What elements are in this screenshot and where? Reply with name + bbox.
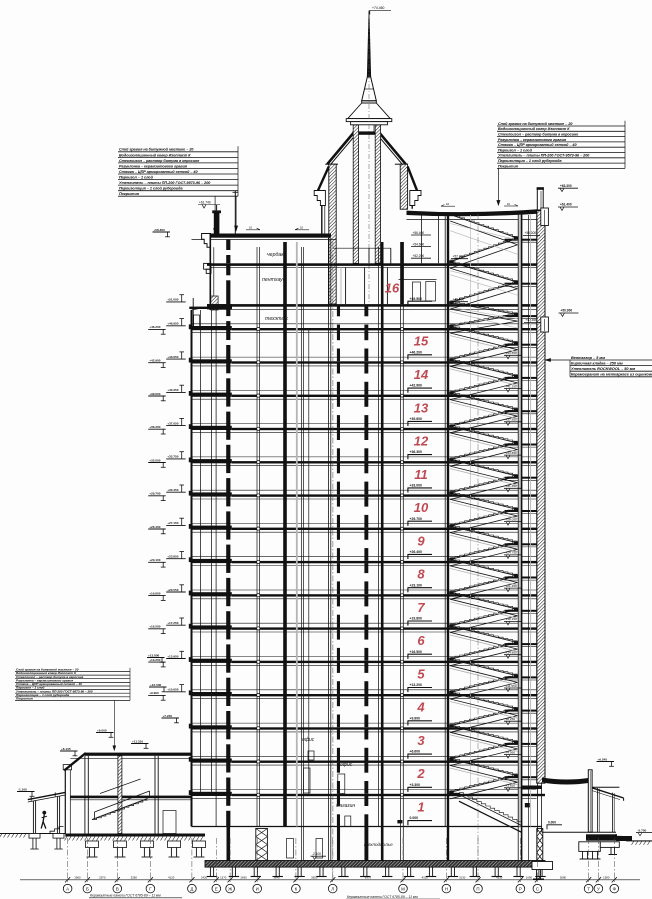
svg-text:+9.000: +9.000 [97,728,107,732]
svg-text:Водоизоляционный ковер Изоплас: Водоизоляционный ковер Изопласт К [119,153,191,157]
svg-text:Н: Н [445,886,448,891]
svg-text:+9.900: +9.900 [149,691,159,695]
svg-text:Утеплитель – плиты ПП-200 ГОСТ: Утеплитель – плиты ПП-200 ГОСТ-9573-96 –… [498,154,590,158]
svg-text:0.000: 0.000 [548,821,556,825]
svg-text:+43.650: +43.650 [167,355,179,359]
svg-text:+29.700: +29.700 [410,517,422,521]
svg-text:+4.950: +4.950 [506,750,516,754]
svg-text:12: 12 [414,434,429,449]
svg-text:15: 15 [414,334,429,349]
svg-text:+49.500: +49.500 [410,297,422,301]
svg-text:+10.500: +10.500 [150,683,162,687]
svg-text:+18.150: +18.150 [506,617,518,621]
svg-text:Р: Р [519,886,522,891]
svg-text:+13.200: +13.200 [410,683,422,687]
svg-text:+26.400: +26.400 [149,525,161,529]
svg-text:+19.800: +19.800 [410,617,422,621]
svg-text:9: 9 [417,533,425,548]
svg-text:+34.650: +34.650 [506,451,518,455]
svg-text:П: П [476,886,479,891]
svg-text:+19.800: +19.800 [149,591,161,595]
svg-text:+33.000: +33.000 [149,458,161,462]
svg-text:Д: Д [190,886,193,891]
svg-text:10: 10 [249,226,253,230]
svg-text:офис: офис [340,762,353,768]
svg-text:+33.750: +33.750 [167,455,179,459]
svg-text:+10.650: +10.650 [167,688,179,692]
svg-text:+8.250: +8.250 [506,717,516,721]
svg-text:+11.550: +11.550 [506,684,517,688]
svg-text:офис: офис [302,737,315,743]
svg-text:+52.200: +52.200 [453,255,465,259]
svg-text:+7.200: +7.200 [163,714,173,718]
svg-text:3650: 3650 [311,876,318,880]
svg-text:+1.650: +1.650 [506,784,516,788]
svg-text:+56.400: +56.400 [413,231,425,235]
svg-text:+39.600: +39.600 [149,392,161,396]
svg-text:+6.600: +6.600 [410,750,421,754]
svg-text:0.000: 0.000 [410,816,419,820]
svg-text:+49.500: +49.500 [453,298,465,302]
svg-text:магазин: магазин [336,803,355,809]
svg-text:+16.500: +16.500 [410,650,422,654]
svg-text:10: 10 [414,500,429,515]
svg-text:3280: 3280 [131,876,138,880]
svg-text:16: 16 [385,281,400,296]
svg-text:+46.200: +46.200 [149,325,161,329]
svg-text:4310: 4310 [422,876,429,880]
svg-text:Слой гравия на битумной мастик: Слой гравия на битумной мастике – 20 [498,122,573,126]
svg-text:Вентзазор – 5 мм: Вентзазор – 5 мм [571,356,605,360]
svg-text:+52.200: +52.200 [413,254,425,258]
svg-text:+30.450: +30.450 [167,488,179,492]
svg-text:+31.350: +31.350 [506,484,518,488]
svg-text:2: 2 [416,766,425,781]
svg-text:+13.800: +13.800 [148,653,160,657]
svg-text:техподполье: техподполье [364,842,393,847]
svg-text:-0.750: -0.750 [638,828,647,832]
svg-text:Пароизол – 1 слой: Пароизол – 1 слой [498,148,533,152]
svg-text:+42.900: +42.900 [149,359,161,363]
svg-text:+33.000: +33.000 [410,484,422,488]
svg-text:+39.600: +39.600 [410,417,422,421]
svg-text:Утеплитель ROCKWOOL – 50 мм: Утеплитель ROCKWOOL – 50 мм [571,367,635,371]
svg-text:+26.400: +26.400 [410,550,422,554]
svg-text:+44.550: +44.550 [506,351,518,355]
svg-text:Покрытия: Покрытия [498,164,519,168]
svg-text:Стеклоизол – раствор битума в: Стеклоизол – раствор битума в керосине [498,133,578,137]
svg-text:+27.150: +27.150 [167,521,179,525]
svg-text:10: 10 [507,202,511,206]
svg-text:+29.700: +29.700 [149,492,161,496]
svg-text:+37.950: +37.950 [506,418,518,422]
svg-text:Керамзитные панели ГОСТ 6785-8: Керамзитные панели ГОСТ 6785-89 – 11 мм [90,894,161,898]
svg-text:К: К [295,886,298,891]
svg-text:чердак: чердак [267,252,284,258]
svg-text:+20.550: +20.550 [167,588,179,592]
svg-text:+46.950: +46.950 [167,322,179,326]
svg-text:+17.250: +17.250 [167,621,179,625]
svg-text:Утеплитель – плиты ПП-200 ГОСТ: Утеплитель – плиты ПП-200 ГОСТ-9573-96 –… [119,181,211,185]
svg-text:Керамзитные панели ГОСТ 6785-8: Керамзитные панели ГОСТ 6785-89 – 11 мм [347,895,418,899]
svg-text:1690: 1690 [526,876,533,880]
svg-text:3840: 3840 [273,876,280,880]
svg-text:У: У [597,886,600,891]
svg-text:-2.100: -2.100 [312,852,321,856]
svg-text:+24.750: +24.750 [506,551,518,555]
svg-text:+21.450: +21.450 [506,584,518,588]
svg-text:Стяжка – ЦПР армированный сетк: Стяжка – ЦПР армированный сеткой – 40 [498,143,577,147]
svg-text:4120: 4120 [168,876,175,880]
svg-text:Л: Л [331,886,334,891]
svg-text:Разуклонка – керамзитового гра: Разуклонка – керамзитового гравия [119,164,188,168]
svg-text:Покрытия: Покрытия [119,192,140,196]
svg-text:Разуклонка – керамзитового гра: Разуклонка – керамзитового гравия [498,138,567,142]
svg-text:+28.050: +28.050 [506,517,518,521]
svg-text:1960: 1960 [74,876,81,880]
svg-text:2690: 2690 [240,876,247,880]
svg-text:2970: 2970 [99,876,106,880]
svg-text:И: И [256,886,259,891]
svg-text:+13.200: +13.200 [149,658,161,662]
svg-text:3130: 3130 [459,876,466,880]
svg-text:1580: 1580 [603,876,610,880]
svg-text:Т: Т [587,886,590,891]
svg-text:Водоизоляционный ковер Изоплас: Водоизоляционный ковер Изопласт К [498,127,570,131]
svg-text:+3.300: +3.300 [410,783,421,787]
svg-text:Стеклоизол – раствор битума в: Стеклоизол – раствор битума в керосине [119,159,199,163]
svg-text:Пароизоляция – 1 слой рубероид: Пароизоляция – 1 слой рубероида [498,159,562,163]
svg-text:+61.400: +61.400 [560,203,572,207]
svg-text:Керамогранит на меткаркасе из: Керамогранит на меткаркасе из оцинковки [571,373,652,377]
svg-text:+11.310: +11.310 [132,739,143,743]
svg-text:14: 14 [414,367,429,382]
svg-text:1: 1 [417,800,424,815]
svg-text:А: А [66,886,69,891]
svg-text:5080: 5080 [560,876,567,880]
svg-text:В: В [116,886,119,891]
svg-text:1370: 1370 [220,876,227,880]
svg-text:+58.800: +58.800 [154,228,166,232]
svg-text:+50.900: +50.900 [561,309,573,313]
svg-text:+46.200: +46.200 [410,350,422,354]
svg-text:Ж: Ж [228,886,232,891]
svg-text:4: 4 [416,700,425,715]
svg-text:Слой гравия на битумной мастик: Слой гравия на битумной мастике – 20 [119,148,194,152]
svg-text:+63.300: +63.300 [560,184,572,188]
svg-text:техэтаж: техэтаж [265,316,288,322]
svg-text:Е: Е [215,886,218,891]
svg-text:Б: Б [86,886,89,891]
svg-text:+37.050: +37.050 [167,421,179,425]
svg-text:+23.100: +23.100 [410,583,422,587]
svg-text:+36.300: +36.300 [410,450,422,454]
svg-text:Пароизол – 1 слой: Пароизол – 1 слой [119,176,154,180]
svg-text:8: 8 [417,567,425,582]
svg-text:+36.300: +36.300 [149,425,161,429]
svg-text:+54.300: +54.300 [525,231,537,235]
svg-text:+16.500: +16.500 [149,625,161,629]
svg-text:Пароизоляция – 1 слой рубероид: Пароизоляция – 1 слой рубероида [119,187,183,191]
svg-text:+74.460: +74.460 [372,6,384,10]
svg-text:2420: 2420 [201,876,208,880]
svg-text:Стяжка – ЦПР армированный сетк: Стяжка – ЦПР армированный сеткой – 40 [119,170,198,174]
svg-text:11: 11 [414,467,428,482]
svg-text:С: С [536,886,539,891]
svg-text:+9.900: +9.900 [410,716,421,720]
svg-text:4210: 4210 [496,876,503,880]
svg-text:+6.545: +6.545 [598,757,608,761]
svg-text:13: 13 [414,400,429,415]
svg-text:+14.850: +14.850 [506,651,518,655]
svg-text:+61.740: +61.740 [199,200,211,204]
svg-text:6970: 6970 [365,876,372,880]
svg-text:+23.850: +23.850 [167,555,179,559]
svg-text:+51.000: +51.000 [167,298,179,302]
svg-text:-1.100: -1.100 [18,787,27,791]
svg-text:М: М [401,886,405,891]
svg-text:+23.100: +23.100 [149,558,161,562]
svg-text:+13.950: +13.950 [167,654,179,658]
svg-text:+54.600: +54.600 [413,242,425,246]
svg-text:7: 7 [417,600,425,615]
svg-text:Покрытия: Покрытия [16,697,33,701]
svg-text:5: 5 [417,666,425,681]
svg-text:10: 10 [446,202,450,206]
svg-text:3: 3 [417,733,425,748]
svg-text:+42.900: +42.900 [410,384,422,388]
svg-text:6: 6 [417,633,425,648]
svg-text:+8.135: +8.135 [61,747,71,751]
svg-text:+47.850: +47.850 [526,318,538,322]
svg-text:Кирпичная кладка – 250 мм: Кирпичная кладка – 250 мм [571,361,623,365]
svg-text:пентхаус: пентхаус [262,277,286,283]
svg-text:+41.250: +41.250 [506,384,518,388]
svg-text:10: 10 [300,226,304,230]
svg-text:+40.350: +40.350 [167,388,179,392]
